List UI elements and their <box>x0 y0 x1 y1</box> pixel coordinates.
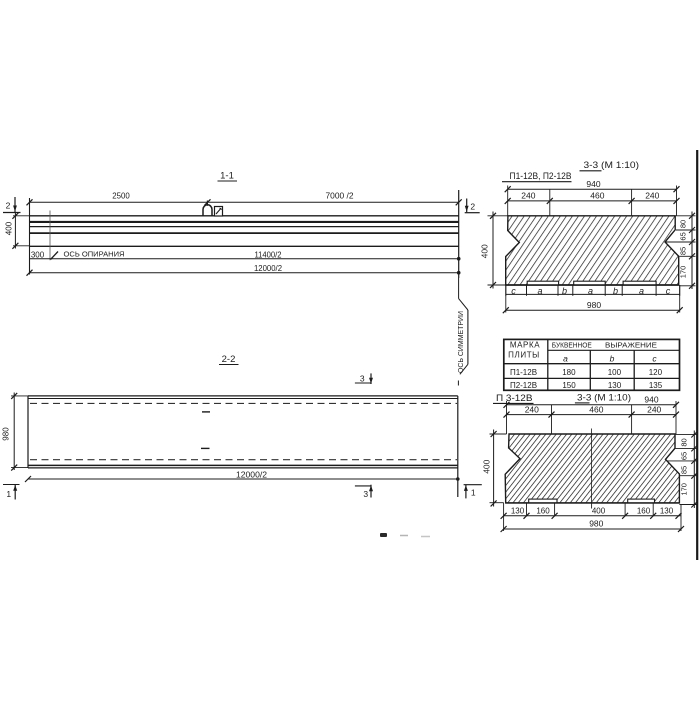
svg-text:2500: 2500 <box>112 190 130 200</box>
svg-text:150: 150 <box>562 381 576 390</box>
svg-text:c: c <box>666 286 671 296</box>
svg-text:МАРКА: МАРКА <box>510 340 540 349</box>
svg-text:170: 170 <box>679 483 688 496</box>
svg-text:c: c <box>511 286 516 296</box>
svg-text:130: 130 <box>660 506 674 515</box>
svg-text:980: 980 <box>2 427 11 441</box>
svg-text:7000 /2: 7000 /2 <box>326 190 354 200</box>
svg-text:1: 1 <box>471 488 476 498</box>
svg-text:1-1: 1-1 <box>220 171 234 182</box>
svg-text:85: 85 <box>679 466 688 474</box>
svg-text:12000/2: 12000/2 <box>254 264 283 273</box>
svg-text:460: 460 <box>590 191 604 201</box>
svg-text:2: 2 <box>6 200 11 210</box>
svg-text:3: 3 <box>363 489 368 499</box>
svg-text:ОСЬ СИММЕТРИИ: ОСЬ СИММЕТРИИ <box>456 311 465 373</box>
svg-text:П1-12В: П1-12В <box>510 368 537 377</box>
svg-text:ПЛИТЫ: ПЛИТЫ <box>508 350 540 359</box>
svg-text:ОСЬ ОПИРАНИЯ: ОСЬ ОПИРАНИЯ <box>64 250 125 259</box>
svg-text:П2-12В: П2-12В <box>510 381 537 390</box>
svg-text:400: 400 <box>592 506 606 515</box>
svg-text:2: 2 <box>470 202 475 212</box>
svg-text:b: b <box>562 286 567 296</box>
svg-text:400: 400 <box>480 244 490 258</box>
svg-text:1: 1 <box>6 489 11 499</box>
svg-text:a: a <box>537 286 542 296</box>
svg-text:240: 240 <box>525 405 539 415</box>
svg-text:3-3 (М 1:10): 3-3 (М 1:10) <box>577 393 631 404</box>
svg-text:3-3 (М 1:10): 3-3 (М 1:10) <box>584 160 640 171</box>
svg-text:400: 400 <box>482 459 492 473</box>
svg-text:160: 160 <box>536 506 550 515</box>
svg-text:180: 180 <box>562 368 576 377</box>
svg-text:980: 980 <box>589 518 603 528</box>
svg-text:240: 240 <box>647 405 661 415</box>
svg-text:12000/2: 12000/2 <box>236 470 268 479</box>
svg-text:940: 940 <box>644 395 658 405</box>
svg-text:240: 240 <box>645 191 659 201</box>
svg-text:БУКВЕННОЕ: БУКВЕННОЕ <box>552 341 592 350</box>
svg-text:460: 460 <box>589 405 603 415</box>
svg-text:130: 130 <box>608 381 622 390</box>
svg-text:980: 980 <box>587 300 601 310</box>
svg-text:3: 3 <box>360 373 365 383</box>
svg-text:2-2: 2-2 <box>222 354 236 365</box>
svg-text:b: b <box>610 353 615 363</box>
svg-text:a: a <box>639 286 644 296</box>
svg-text:a: a <box>563 353 568 363</box>
svg-text:П 3-12В: П 3-12В <box>496 393 533 403</box>
svg-text:85: 85 <box>678 247 687 255</box>
svg-text:240: 240 <box>521 191 535 201</box>
svg-text:c: c <box>652 353 657 363</box>
svg-text:ВЫРАЖЕНИЕ: ВЫРАЖЕНИЕ <box>605 341 657 350</box>
svg-text:300: 300 <box>31 251 45 260</box>
svg-text:170: 170 <box>678 266 687 279</box>
svg-text:80: 80 <box>679 438 688 446</box>
svg-text:100: 100 <box>608 368 622 377</box>
svg-text:120: 120 <box>649 368 663 377</box>
svg-text:80: 80 <box>678 220 687 228</box>
svg-text:940: 940 <box>586 179 600 189</box>
svg-text:65: 65 <box>679 452 688 460</box>
svg-text:400: 400 <box>5 221 14 235</box>
svg-text:11400/2: 11400/2 <box>255 250 283 259</box>
svg-text:65: 65 <box>678 232 687 240</box>
svg-text:160: 160 <box>637 506 651 515</box>
svg-text:135: 135 <box>649 381 663 390</box>
svg-text:130: 130 <box>511 506 525 515</box>
svg-text:П1-12В, П2-12В: П1-12В, П2-12В <box>510 171 572 181</box>
svg-text:b: b <box>613 286 618 296</box>
svg-text:a: a <box>588 286 593 296</box>
